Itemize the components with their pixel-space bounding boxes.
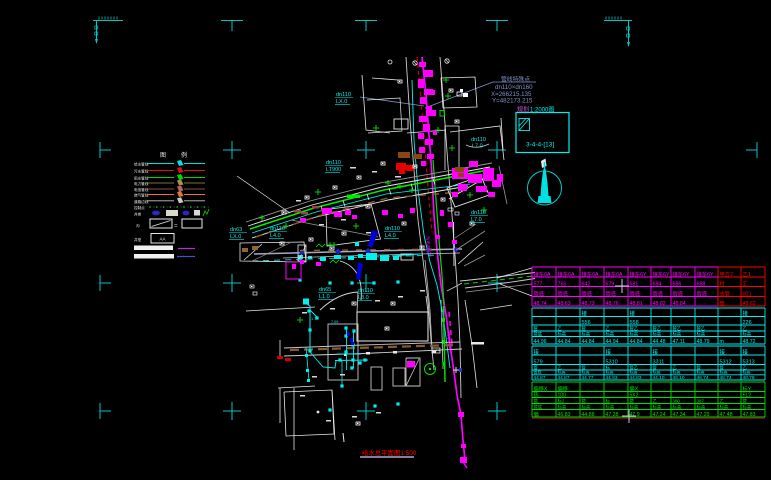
- svg-text:标高: 标高: [743, 403, 752, 410]
- svg-text:管: 管: [743, 397, 748, 404]
- svg-text:乙: 乙: [653, 397, 658, 403]
- svg-text:L3.0: L3.0: [358, 295, 369, 301]
- svg-text:接: 接: [653, 348, 659, 356]
- svg-text:681: 681: [630, 281, 639, 287]
- svg-text:48.72: 48.72: [743, 339, 756, 345]
- svg-text:dn110: dn110: [336, 92, 351, 98]
- svg-text:L4.0: L4.0: [385, 233, 396, 239]
- svg-text:44.84: 44.84: [582, 339, 595, 345]
- svg-text:380: 380: [673, 398, 681, 403]
- svg-text:井类: 井类: [134, 212, 142, 217]
- svg-text:47.28: 47.28: [606, 412, 619, 418]
- svg-text:雨水管线: 雨水管线: [134, 176, 149, 181]
- svg-text:577: 577: [534, 281, 543, 287]
- svg-text:dn65: dn65: [319, 287, 331, 293]
- svg-text:dn110: dn110: [326, 160, 341, 166]
- svg-text:偏移X: 偏移X: [534, 384, 548, 392]
- svg-text:47.48: 47.48: [720, 412, 733, 418]
- svg-text:47.83: 47.83: [743, 412, 756, 418]
- svg-text:管底: 管底: [697, 289, 708, 297]
- svg-text:L1.0: L1.0: [319, 294, 330, 300]
- svg-text:标高: 标高: [582, 369, 590, 375]
- svg-text:标高: 标高: [558, 330, 567, 337]
- svg-text:乙: 乙: [558, 325, 563, 331]
- svg-text:燃气管线: 燃气管线: [134, 193, 149, 198]
- svg-text:标高: 标高: [720, 369, 728, 375]
- svg-text:44.87: 44.87: [558, 375, 570, 381]
- svg-text:44.84: 44.84: [630, 339, 643, 345]
- svg-text:686: 686: [673, 281, 682, 287]
- svg-text:dn110: dn110: [471, 137, 486, 143]
- svg-text:标高: 标高: [630, 403, 639, 410]
- svg-text:44.10: 44.10: [653, 375, 665, 381]
- svg-text:图: 图: [160, 152, 166, 159]
- svg-text:接: 接: [606, 348, 612, 356]
- svg-text:标2: 标2: [558, 397, 565, 404]
- svg-text:=: =: [174, 224, 178, 230]
- svg-text:7.09: 7.09: [331, 320, 338, 324]
- svg-text:dn110: dn110: [471, 210, 486, 216]
- svg-text:乙: 乙: [743, 325, 748, 331]
- svg-text:44.84: 44.84: [558, 339, 571, 345]
- svg-text:管底: 管底: [534, 330, 543, 337]
- svg-text:管: 管: [630, 397, 635, 404]
- svg-text:标高: 标高: [697, 369, 705, 375]
- svg-text:dn110: dn110: [270, 226, 285, 232]
- svg-text:48.84: 48.84: [673, 301, 686, 307]
- svg-text:标高: 标高: [697, 403, 706, 410]
- svg-text:管: 管: [720, 299, 725, 307]
- svg-text:标高: 标高: [558, 403, 567, 410]
- svg-text:47.34: 47.34: [673, 412, 686, 418]
- svg-text:标高: 标高: [673, 330, 682, 337]
- svg-text:标高: 标高: [697, 330, 706, 337]
- svg-text:偏移: 偏移: [558, 384, 568, 392]
- svg-text:接: 接: [720, 348, 726, 356]
- svg-text:接: 接: [630, 309, 636, 317]
- svg-text:dn110×dn160: dn110×dn160: [495, 84, 533, 91]
- svg-text:48.82: 48.82: [653, 301, 666, 307]
- svg-text:接东6Y: 接东6Y: [630, 270, 648, 278]
- svg-text:井型: 井型: [134, 237, 142, 242]
- svg-text:LX.0: LX.0: [230, 234, 241, 240]
- svg-text:电信管线: 电信管线: [134, 187, 149, 192]
- svg-text:m: m: [720, 339, 724, 345]
- svg-text:48.62: 48.62: [743, 301, 756, 307]
- svg-text:标高: 标高: [743, 369, 751, 375]
- svg-text:47.29: 47.29: [697, 412, 710, 418]
- svg-text:例: 例: [181, 151, 187, 159]
- svg-text:村: 村: [720, 279, 726, 287]
- svg-text:679: 679: [606, 281, 615, 287]
- svg-text:765: 765: [558, 281, 567, 287]
- svg-text:接: 接: [582, 309, 588, 317]
- svg-text:44.87: 44.87: [534, 375, 546, 381]
- svg-text:48.73: 48.73: [582, 301, 595, 307]
- svg-text:接东6A: 接东6A: [606, 270, 624, 278]
- svg-text:标高: 标高: [582, 330, 591, 337]
- svg-text:标高: 标高: [653, 369, 661, 375]
- svg-text:接: 接: [534, 348, 540, 356]
- svg-text:管底: 管底: [582, 289, 593, 297]
- svg-text:标高: 标高: [582, 403, 591, 410]
- svg-text:47.11: 47.11: [673, 339, 686, 345]
- svg-text:642: 642: [582, 281, 591, 287]
- svg-text:标高: 标高: [720, 403, 729, 410]
- svg-text:44.94: 44.94: [606, 339, 619, 345]
- svg-text:接东6Y: 接东6Y: [653, 270, 671, 278]
- svg-text:dn110: dn110: [385, 226, 400, 232]
- svg-text:管底: 管底: [534, 369, 542, 375]
- svg-text:接东6A: 接东6A: [558, 270, 576, 278]
- svg-text:标高: 标高: [673, 403, 682, 410]
- svg-text:给水总平面图1:500: 给水总平面图1:500: [362, 448, 417, 457]
- svg-text:标高: 标高: [630, 330, 639, 337]
- svg-text:AA: AA: [159, 237, 165, 242]
- svg-text:688: 688: [697, 281, 706, 287]
- svg-text:管底: 管底: [534, 289, 545, 297]
- svg-text:接东6A: 接东6A: [534, 270, 552, 278]
- svg-text:标高: 标高: [630, 369, 638, 375]
- svg-text:LT900: LT900: [326, 167, 341, 173]
- svg-text:沟: 沟: [136, 223, 140, 228]
- svg-text:标Y: 标Y: [743, 384, 752, 392]
- svg-text:道路边线: 道路边线: [134, 199, 149, 204]
- svg-text:标高: 标高: [606, 369, 614, 375]
- svg-text:L7.0: L7.0: [471, 217, 482, 223]
- svg-text:684: 684: [653, 281, 662, 287]
- svg-text:甲方2: 甲方2: [720, 270, 734, 278]
- svg-text:标高: 标高: [673, 369, 681, 375]
- svg-text:标高: 标高: [653, 330, 662, 337]
- svg-text:48.74: 48.74: [697, 375, 709, 381]
- svg-text:管底: 管底: [673, 289, 684, 297]
- svg-text:Y=482173.215: Y=482173.215: [492, 98, 533, 105]
- svg-text:控制点: 控制点: [134, 205, 145, 210]
- svg-text:接东6Y: 接东6Y: [697, 270, 715, 278]
- svg-text:44.93: 44.93: [606, 375, 618, 381]
- svg-text:热: 热: [534, 391, 539, 398]
- svg-text:44.48: 44.48: [653, 339, 666, 345]
- svg-text:44.83: 44.83: [630, 375, 642, 381]
- svg-text:48.81: 48.81: [630, 301, 643, 307]
- svg-text:接: 接: [743, 309, 749, 317]
- svg-text:管底: 管底: [558, 289, 569, 297]
- svg-text:乙: 乙: [606, 325, 611, 331]
- svg-text:标高: 标高: [558, 369, 566, 375]
- svg-text:标高: 标高: [653, 403, 662, 410]
- svg-text:47.9: 47.9: [630, 412, 640, 418]
- svg-text:标高: 标高: [606, 403, 615, 410]
- svg-text:48.74: 48.74: [720, 375, 732, 381]
- svg-text:48.10: 48.10: [673, 375, 685, 381]
- svg-text:接东6Y: 接东6Y: [673, 270, 691, 278]
- svg-text:电力管线: 电力管线: [134, 181, 149, 186]
- svg-text:管: 管: [582, 397, 587, 404]
- svg-text:dn63: dn63: [230, 227, 242, 233]
- svg-text:LX.0: LX.0: [336, 99, 347, 105]
- svg-text:乙: 乙: [720, 397, 725, 403]
- svg-text:支管: 支管: [720, 289, 731, 297]
- svg-text:汇: 汇: [743, 279, 749, 287]
- svg-text:标: 标: [606, 397, 611, 404]
- svg-text:44.88: 44.88: [582, 412, 595, 418]
- svg-text:48.74: 48.74: [534, 301, 547, 307]
- svg-text:标高: 标高: [743, 330, 752, 337]
- svg-text:乙1: 乙1: [743, 271, 751, 278]
- svg-text:接: 接: [743, 348, 749, 356]
- svg-text:管: 管: [534, 397, 539, 404]
- svg-text:污水管线: 污水管线: [134, 169, 149, 174]
- svg-text:47.24: 47.24: [653, 412, 666, 418]
- svg-text:48.79: 48.79: [697, 339, 710, 345]
- svg-text:管底: 管底: [653, 289, 664, 297]
- svg-text:44.77: 44.77: [582, 375, 594, 381]
- svg-text:387: 387: [697, 398, 705, 403]
- svg-text:偏X: 偏X: [630, 384, 639, 392]
- svg-text:(红): (红): [743, 289, 752, 297]
- svg-text:偏: 偏: [534, 410, 539, 418]
- svg-text:管底: 管底: [630, 289, 641, 297]
- svg-text:3-4-4-[13]: 3-4-4-[13]: [526, 142, 554, 149]
- svg-text:给水管线: 给水管线: [134, 162, 149, 167]
- svg-text:标高: 标高: [606, 330, 615, 337]
- svg-text:L4.0: L4.0: [270, 233, 281, 239]
- svg-text:48.78: 48.78: [743, 375, 755, 381]
- svg-text:dn110: dn110: [358, 288, 373, 294]
- svg-text:44.96: 44.96: [534, 339, 547, 345]
- svg-text:46.83: 46.83: [558, 412, 571, 418]
- svg-text:48.63: 48.63: [558, 301, 571, 307]
- svg-text:接东6A: 接东6A: [582, 270, 600, 278]
- svg-text:管底: 管底: [606, 289, 617, 297]
- svg-text:48.76: 48.76: [606, 301, 619, 307]
- svg-text:管底: 管底: [534, 403, 543, 410]
